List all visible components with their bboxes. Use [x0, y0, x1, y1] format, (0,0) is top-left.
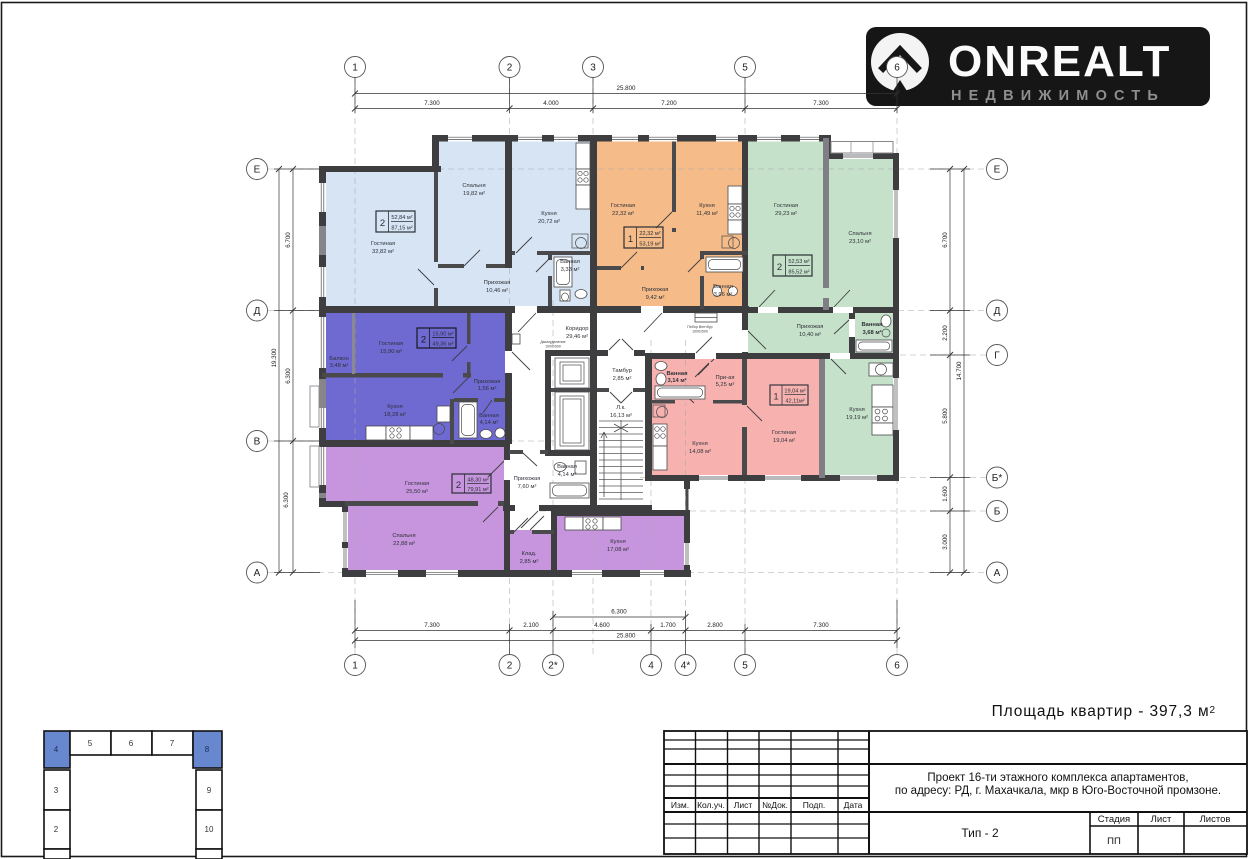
svg-text:7,60 м²: 7,60 м²	[518, 484, 537, 490]
svg-text:Д: Д	[254, 306, 261, 317]
svg-text:5: 5	[742, 63, 748, 74]
svg-text:1: 1	[628, 234, 633, 245]
svg-text:Кухня: Кухня	[699, 203, 715, 209]
svg-text:5,25 м²: 5,25 м²	[716, 382, 735, 388]
svg-text:Ванная: Ванная	[479, 413, 499, 419]
svg-text:Прихожая: Прихожая	[474, 379, 501, 385]
svg-text:7.300: 7.300	[424, 100, 440, 107]
svg-text:87,15 м²: 87,15 м²	[391, 226, 412, 232]
svg-text:7.300: 7.300	[424, 622, 440, 629]
svg-text:15,90 м²: 15,90 м²	[432, 332, 453, 338]
svg-text:Гостиная: Гостиная	[371, 241, 395, 247]
svg-text:2: 2	[54, 825, 59, 834]
svg-text:6.300: 6.300	[611, 609, 627, 616]
svg-text:3,68 м²: 3,68 м²	[862, 329, 881, 336]
svg-text:3,96 м²: 3,96 м²	[714, 292, 733, 298]
svg-text:14.700: 14.700	[956, 361, 963, 380]
svg-text:Кухня: Кухня	[849, 407, 865, 413]
svg-text:Листов: Листов	[1200, 814, 1231, 825]
svg-text:Лист: Лист	[1151, 814, 1172, 825]
svg-text:Проект 16-ти этажного комплекс: Проект 16-ти этажного комплекса апартаме…	[927, 772, 1188, 784]
svg-text:25.800: 25.800	[617, 633, 636, 640]
svg-text:Прихожая: Прихожая	[514, 476, 541, 482]
svg-text:6.300: 6.300	[285, 368, 292, 384]
svg-text:6.700: 6.700	[285, 232, 292, 248]
svg-text:Лист: Лист	[734, 800, 753, 810]
svg-text:Ванная: Ванная	[557, 464, 577, 470]
svg-text:Кухня: Кухня	[692, 441, 708, 447]
svg-text:10,46 м²: 10,46 м²	[486, 288, 508, 294]
svg-text:Площадь квартир - 397,3 м2: Площадь квартир - 397,3 м2	[992, 703, 1216, 720]
svg-text:6.700: 6.700	[942, 232, 949, 248]
svg-text:Г: Г	[994, 351, 1000, 362]
svg-text:42,11м²: 42,11м²	[785, 399, 804, 405]
svg-text:22,88 м²: 22,88 м²	[393, 541, 415, 547]
svg-text:Тип - 2: Тип - 2	[961, 826, 999, 840]
svg-text:по адресу: РД, г. Махачкала, м: по адресу: РД, г. Махачкала, мкр в Юго-В…	[895, 785, 1221, 797]
svg-text:При-ая: При-ая	[716, 375, 735, 381]
svg-text:52,84 м²: 52,84 м²	[391, 215, 412, 221]
svg-text:Тамбур: Тамбур	[612, 368, 632, 374]
svg-text:15,90 м²: 15,90 м²	[380, 349, 402, 355]
svg-text:9,42 м²: 9,42 м²	[646, 295, 665, 301]
svg-text:Б: Б	[994, 507, 1001, 518]
svg-text:Прихожая: Прихожая	[797, 324, 824, 330]
svg-text:Д: Д	[994, 306, 1001, 317]
svg-text:Изм.: Изм.	[671, 800, 689, 810]
svg-text:5: 5	[742, 661, 748, 672]
svg-text:Е: Е	[994, 165, 1001, 176]
svg-text:Гостиная: Гостиная	[772, 430, 796, 436]
svg-text:7.300: 7.300	[813, 622, 829, 629]
svg-text:ПП: ПП	[1107, 836, 1121, 847]
svg-text:2: 2	[380, 218, 385, 229]
svg-text:Л.к.: Л.к.	[616, 405, 626, 411]
svg-text:Спальня: Спальня	[848, 231, 871, 237]
svg-text:4,14 м²: 4,14 м²	[558, 472, 577, 478]
svg-text:2: 2	[456, 480, 461, 491]
svg-text:29,46 м²: 29,46 м²	[566, 334, 588, 340]
svg-text:Пебор Вентбур: Пебор Вентбур	[687, 325, 712, 329]
svg-text:Гостиная: Гостиная	[405, 481, 429, 487]
svg-text:Ванная: Ванная	[713, 284, 733, 290]
svg-text:22,32 м²: 22,32 м²	[612, 211, 634, 217]
svg-text:16,13 м²: 16,13 м²	[610, 413, 632, 419]
svg-text:Б*: Б*	[992, 473, 1003, 484]
svg-text:1,56 м²: 1,56 м²	[478, 386, 497, 392]
svg-text:Стадия: Стадия	[1098, 814, 1130, 825]
svg-text:19,04 м²: 19,04 м²	[773, 438, 795, 444]
svg-text:Дата: Дата	[844, 800, 863, 810]
svg-text:Кухня: Кухня	[610, 539, 626, 545]
svg-text:2*: 2*	[548, 661, 558, 672]
svg-text:Балкон: Балкон	[329, 356, 348, 362]
svg-text:Гостиная: Гостиная	[379, 341, 403, 347]
svg-text:29,23 м²: 29,23 м²	[775, 211, 797, 217]
svg-text:Кухня: Кухня	[387, 404, 403, 410]
svg-text:6: 6	[129, 739, 134, 748]
svg-text:1: 1	[352, 63, 358, 74]
svg-text:1000х500: 1000х500	[692, 330, 708, 334]
svg-text:Ванная: Ванная	[861, 322, 882, 328]
svg-text:1.700: 1.700	[660, 622, 676, 629]
svg-text:3,14 м²: 3,14 м²	[667, 377, 686, 384]
svg-text:Гостиная: Гостиная	[774, 203, 798, 209]
svg-text:3.000: 3.000	[942, 534, 949, 550]
svg-text:7: 7	[170, 739, 175, 748]
svg-text:2.100: 2.100	[523, 622, 539, 629]
svg-text:А: А	[254, 568, 261, 579]
svg-text:85,52 м²: 85,52 м²	[788, 270, 809, 276]
svg-text:В: В	[254, 437, 261, 448]
svg-text:32,82 м²: 32,82 м²	[372, 249, 394, 255]
svg-text:Дымоудаление: Дымоудаление	[540, 340, 565, 344]
svg-text:22,32 м²: 22,32 м²	[639, 231, 660, 237]
svg-text:Прихожая: Прихожая	[484, 280, 511, 286]
svg-text:49,36 м²: 49,36 м²	[432, 342, 453, 348]
svg-text:2: 2	[777, 262, 782, 273]
svg-text:19,82 м²: 19,82 м²	[463, 191, 485, 197]
svg-text:1: 1	[773, 392, 778, 403]
svg-text:Е: Е	[254, 165, 261, 176]
svg-text:25.800: 25.800	[617, 85, 636, 92]
svg-text:4.000: 4.000	[543, 100, 559, 107]
svg-text:25,50 м²: 25,50 м²	[406, 489, 428, 495]
svg-text:Спальня: Спальня	[392, 533, 415, 539]
svg-text:Ванная: Ванная	[666, 371, 687, 377]
svg-text:8: 8	[205, 745, 210, 754]
svg-text:1000х500: 1000х500	[545, 345, 561, 349]
svg-text:Прихожая: Прихожая	[642, 287, 669, 293]
svg-text:6: 6	[894, 63, 900, 74]
svg-text:19.300: 19.300	[271, 348, 278, 367]
svg-text:Гостиная: Гостиная	[611, 203, 635, 209]
svg-text:2: 2	[507, 63, 513, 74]
svg-text:5.800: 5.800	[942, 408, 949, 424]
svg-text:3: 3	[590, 63, 596, 74]
svg-text:Ванная: Ванная	[560, 259, 580, 265]
svg-text:3: 3	[54, 786, 59, 795]
svg-text:9: 9	[207, 786, 212, 795]
svg-text:2,85 м²: 2,85 м²	[520, 559, 539, 565]
svg-text:2.800: 2.800	[707, 622, 723, 629]
svg-text:4: 4	[648, 661, 654, 672]
svg-text:20,72 м²: 20,72 м²	[538, 219, 560, 225]
svg-text:4: 4	[54, 745, 59, 754]
svg-text:3,33 м²: 3,33 м²	[561, 267, 580, 273]
svg-text:Кол.уч.: Кол.уч.	[697, 800, 725, 810]
svg-text:Подп.: Подп.	[803, 800, 826, 810]
svg-text:4,14 м²: 4,14 м²	[480, 420, 499, 426]
svg-text:10,40 м²: 10,40 м²	[799, 332, 821, 338]
svg-text:Клад.: Клад.	[522, 551, 537, 557]
svg-text:2: 2	[507, 661, 513, 672]
svg-text:1: 1	[352, 661, 358, 672]
svg-text:Спальня: Спальня	[462, 183, 485, 189]
svg-text:ONREALT: ONREALT	[948, 37, 1171, 86]
svg-text:6: 6	[894, 661, 900, 672]
svg-text:19,04 м²: 19,04 м²	[784, 389, 805, 395]
svg-text:17,08 м²: 17,08 м²	[607, 547, 629, 553]
svg-text:7.200: 7.200	[661, 100, 677, 107]
svg-text:4.600: 4.600	[594, 622, 610, 629]
svg-text:7.300: 7.300	[813, 100, 829, 107]
svg-text:3,48 м²: 3,48 м²	[330, 363, 349, 369]
svg-text:4*: 4*	[681, 661, 691, 672]
svg-text:6.300: 6.300	[283, 492, 290, 508]
svg-text:НЕДВИЖИМОСТЬ: НЕДВИЖИМОСТЬ	[951, 88, 1165, 104]
svg-text:2,85 м²: 2,85 м²	[613, 376, 632, 382]
svg-text:5: 5	[88, 739, 93, 748]
svg-text:53,19 м²: 53,19 м²	[639, 242, 660, 248]
svg-text:48,30 м²: 48,30 м²	[467, 478, 488, 484]
svg-text:№Док.: №Док.	[762, 800, 788, 810]
svg-text:А: А	[994, 568, 1001, 579]
svg-text:Коридор: Коридор	[566, 326, 589, 332]
svg-text:79,91 м²: 79,91 м²	[467, 487, 488, 493]
svg-text:2.200: 2.200	[942, 325, 949, 341]
svg-text:52,53 м²: 52,53 м²	[788, 259, 809, 265]
svg-text:11,49 м²: 11,49 м²	[696, 211, 718, 217]
svg-text:2: 2	[421, 335, 426, 346]
svg-text:10: 10	[205, 825, 214, 834]
svg-text:Кухня: Кухня	[541, 211, 557, 217]
svg-text:18,28 м²: 18,28 м²	[384, 412, 406, 418]
svg-text:1.600: 1.600	[942, 486, 949, 502]
svg-text:14,08 м²: 14,08 м²	[689, 449, 711, 455]
svg-text:19,19 м²: 19,19 м²	[846, 415, 868, 421]
svg-text:23,10 м²: 23,10 м²	[849, 239, 871, 245]
